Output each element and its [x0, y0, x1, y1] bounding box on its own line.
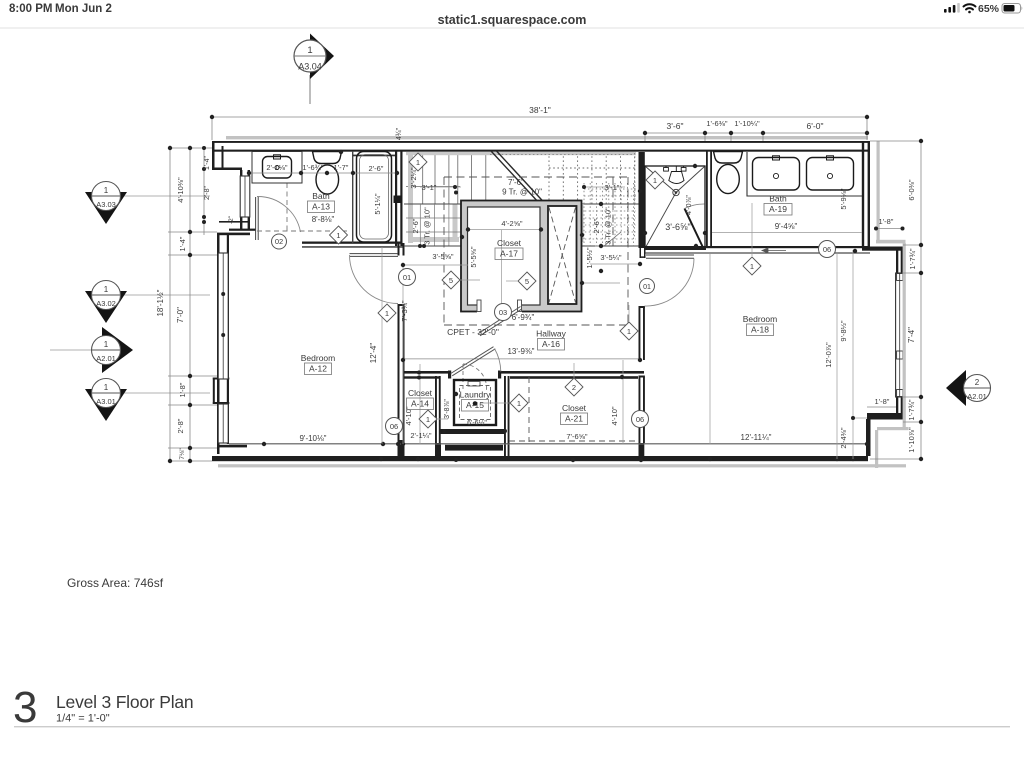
svg-text:06: 06: [636, 415, 644, 424]
svg-text:7'-4": 7'-4": [907, 327, 916, 343]
svg-text:7'-6": 7'-6": [508, 178, 524, 187]
svg-text:1'-4": 1'-4": [178, 236, 187, 251]
svg-text:6'-0": 6'-0": [807, 121, 824, 131]
svg-text:7⅛": 7⅛": [179, 448, 186, 460]
svg-text:5: 5: [525, 277, 529, 286]
svg-text:Bath: Bath: [312, 191, 330, 201]
svg-text:12'-0⅞": 12'-0⅞": [824, 342, 833, 368]
svg-text:1'-7": 1'-7": [334, 163, 349, 172]
svg-text:2: 2: [572, 383, 576, 392]
svg-text:3'-1": 3'-1": [605, 183, 620, 192]
svg-text:1'-10⅞": 1'-10⅞": [907, 427, 916, 453]
svg-text:3'-5⅝": 3'-5⅝": [432, 252, 454, 261]
svg-text:4¾": 4¾": [396, 127, 403, 140]
svg-text:A-14: A-14: [411, 399, 429, 409]
svg-text:1: 1: [416, 158, 420, 167]
svg-text:7'-0": 7'-0": [176, 307, 185, 323]
svg-text:1: 1: [750, 262, 754, 271]
svg-text:Bedroom: Bedroom: [743, 314, 778, 324]
svg-text:01: 01: [643, 284, 651, 291]
svg-text:1'-8": 1'-8": [178, 382, 187, 397]
svg-text:13'-9⅜": 13'-9⅜": [507, 347, 534, 356]
svg-text:9'-10⅛": 9'-10⅛": [299, 434, 326, 443]
svg-text:1'-6¾": 1'-6¾": [302, 163, 324, 172]
svg-text:A3.04: A3.04: [298, 62, 322, 72]
svg-text:1'-7¾": 1'-7¾": [908, 248, 917, 270]
svg-text:03: 03: [499, 308, 507, 317]
svg-text:Bedroom: Bedroom: [301, 353, 336, 363]
svg-text:5'-5⅝": 5'-5⅝": [469, 246, 478, 268]
svg-text:2'-1⅛": 2'-1⅛": [266, 163, 288, 172]
svg-text:Mon Jun 2: Mon Jun 2: [55, 3, 112, 15]
svg-text:5: 5: [449, 276, 453, 285]
svg-text:6'-6½": 6'-6½": [467, 419, 487, 427]
svg-text:6'-9¾": 6'-9¾": [512, 313, 535, 322]
svg-text:static1.squarespace.com: static1.squarespace.com: [438, 13, 587, 27]
svg-text:3 Tr. @ 10": 3 Tr. @ 10": [423, 207, 432, 245]
svg-text:12'-11¼": 12'-11¼": [741, 433, 772, 442]
svg-text:12'-4": 12'-4": [369, 343, 378, 364]
svg-text:2: 2: [975, 378, 980, 387]
svg-text:Level 3 Floor Plan: Level 3 Floor Plan: [56, 692, 193, 712]
svg-text:2'-8": 2'-8": [204, 186, 211, 200]
svg-text:3 Tr. @ 10": 3 Tr. @ 10": [604, 207, 613, 245]
svg-text:6'-0⅜": 6'-0⅜": [907, 179, 916, 201]
svg-text:A-19: A-19: [769, 204, 787, 214]
svg-text:3'-6": 3'-6": [667, 121, 684, 131]
svg-text:9'-4⅝": 9'-4⅝": [775, 222, 798, 231]
svg-text:8:00 PM: 8:00 PM: [9, 3, 52, 15]
svg-text:3: 3: [13, 683, 37, 732]
svg-text:A2.01: A2.01: [967, 392, 987, 401]
svg-text:5'-9⅛": 5'-9⅛": [839, 188, 848, 210]
svg-text:2'-1¼": 2'-1¼": [410, 431, 432, 440]
svg-text:Hallway: Hallway: [536, 329, 567, 339]
svg-text:65%: 65%: [978, 3, 1000, 15]
svg-text:A-13: A-13: [312, 202, 330, 212]
svg-text:1: 1: [385, 309, 389, 318]
svg-text:A-18: A-18: [751, 325, 769, 335]
svg-text:1'-6⅜": 1'-6⅜": [706, 119, 728, 128]
svg-text:1: 1: [104, 340, 109, 349]
svg-text:1: 1: [104, 285, 109, 294]
svg-text:06: 06: [390, 422, 398, 431]
svg-text:Closet: Closet: [562, 403, 587, 413]
svg-text:3'-1": 3'-1": [422, 183, 437, 192]
svg-text:02: 02: [275, 237, 283, 246]
svg-text:7'-6⅝": 7'-6⅝": [566, 432, 588, 441]
svg-text:-2": -2": [228, 215, 235, 224]
svg-text:1'-8": 1'-8": [879, 217, 894, 226]
svg-text:1: 1: [653, 176, 657, 185]
svg-text:4'-10": 4'-10": [610, 406, 619, 425]
svg-text:2'-6": 2'-6": [369, 164, 384, 173]
svg-text:1: 1: [104, 186, 109, 195]
svg-text:4'-10⅜": 4'-10⅜": [176, 177, 185, 203]
svg-text:1'-4": 1'-4": [204, 156, 211, 170]
svg-text:A-17: A-17: [500, 249, 518, 259]
svg-text:2'-8": 2'-8": [176, 418, 185, 433]
svg-text:9'-8½": 9'-8½": [839, 320, 848, 342]
svg-text:4'-0⅞": 4'-0⅞": [686, 195, 693, 215]
svg-text:A3.03: A3.03: [96, 200, 116, 209]
svg-text:2'-4⅜": 2'-4⅜": [839, 427, 848, 449]
svg-text:1: 1: [426, 415, 430, 424]
svg-text:4'-10": 4'-10": [404, 406, 413, 425]
svg-text:01: 01: [403, 273, 411, 282]
svg-text:Gross Area: 746sf: Gross Area: 746sf: [67, 576, 164, 590]
svg-text:9 Tr. @ 10": 9 Tr. @ 10": [502, 188, 542, 197]
svg-text:1: 1: [336, 231, 340, 240]
svg-text:5'-1¼": 5'-1¼": [373, 193, 382, 215]
svg-text:1'-8": 1'-8": [875, 397, 890, 406]
svg-text:A-21: A-21: [565, 414, 583, 424]
svg-text:7'-3¾": 7'-3¾": [400, 300, 409, 322]
svg-text:A2.01: A2.01: [96, 354, 116, 363]
svg-text:1/4" = 1'-0": 1/4" = 1'-0": [56, 713, 110, 725]
svg-text:38'-1": 38'-1": [529, 105, 551, 115]
svg-text:A3.02: A3.02: [96, 299, 116, 308]
svg-text:Bath: Bath: [769, 194, 787, 204]
svg-text:1: 1: [517, 399, 521, 408]
svg-text:1'-7¾": 1'-7¾": [907, 399, 916, 421]
svg-text:A3.01: A3.01: [96, 397, 116, 406]
svg-text:2'-6": 2'-6": [592, 218, 601, 233]
svg-text:06: 06: [823, 245, 831, 254]
svg-text:Closet: Closet: [408, 388, 433, 398]
svg-text:1: 1: [104, 383, 109, 392]
svg-text:A-12: A-12: [309, 364, 327, 374]
svg-text:1: 1: [307, 45, 312, 56]
svg-text:8'-8⅛": 8'-8⅛": [312, 215, 335, 224]
svg-text:3'-8⅞": 3'-8⅞": [444, 399, 451, 419]
svg-text:Closet: Closet: [497, 238, 522, 248]
svg-text:3'-2¼": 3'-2¼": [409, 167, 418, 189]
svg-text:2'-6": 2'-6": [411, 218, 420, 233]
svg-text:A-16: A-16: [542, 339, 560, 349]
svg-text:18'-1½": 18'-1½": [156, 289, 165, 316]
svg-text:1: 1: [627, 327, 631, 336]
svg-text:3'-5¼": 3'-5¼": [600, 253, 622, 262]
svg-text:1'-10¼": 1'-10¼": [734, 119, 760, 128]
svg-text:1'-5½": 1'-5½": [585, 247, 594, 269]
svg-text:4'-2⅝": 4'-2⅝": [501, 219, 523, 228]
svg-text:Laundry: Laundry: [460, 390, 491, 400]
svg-text:CPET - 32'-0": CPET - 32'-0": [447, 327, 499, 337]
svg-text:3'-6⅝": 3'-6⅝": [665, 222, 690, 232]
